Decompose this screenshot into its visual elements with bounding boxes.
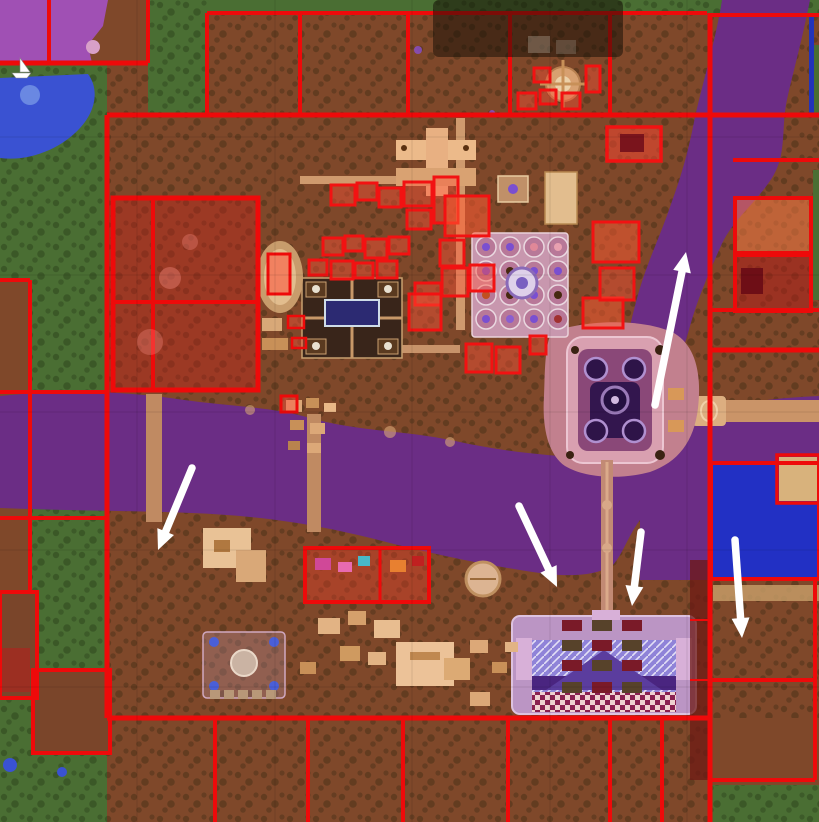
- quad-clearing: [182, 234, 198, 250]
- plot-claim: [323, 238, 343, 255]
- purple-spot-1: [414, 46, 422, 54]
- island-tree-4: [566, 451, 574, 459]
- palace-dome-sw: [585, 420, 607, 442]
- garden-sw-dot: [209, 637, 219, 647]
- cathedral-dot: [463, 145, 469, 151]
- market-stall: [358, 556, 370, 566]
- plot-claim: [466, 344, 492, 372]
- market-stall-plot: [592, 640, 612, 651]
- north-bank-building: [310, 423, 325, 434]
- plot-claim: [331, 261, 353, 279]
- bridge-west: [146, 394, 162, 522]
- shore-dab-2: [445, 437, 455, 447]
- parterre-circle: [312, 342, 320, 350]
- market-stall: [412, 556, 424, 566]
- plot-claim: [518, 93, 536, 109]
- island-tree-2: [571, 346, 579, 354]
- pond-sw-2: [57, 767, 67, 777]
- lake-nw-shallow: [20, 85, 40, 105]
- garden-sw-dot: [269, 637, 279, 647]
- garden-sw-plot: [224, 690, 234, 699]
- village-building: [492, 662, 507, 673]
- village-building: [318, 618, 340, 634]
- village-building: [505, 642, 518, 652]
- sw-claim-ground-2: [33, 670, 110, 753]
- market-stall-plot: [622, 620, 642, 631]
- orchard-claim: [445, 196, 489, 236]
- garden-sw-dot: [269, 681, 279, 691]
- garden-dot: [530, 315, 538, 323]
- right-bottom-ground: [712, 718, 819, 785]
- garden-medallion-dot: [516, 277, 528, 289]
- market-stall-plot: [562, 620, 582, 631]
- causeway-knob-1: [602, 500, 612, 510]
- plot-claim: [331, 185, 355, 205]
- plot-claim: [379, 188, 401, 207]
- market-stall: [390, 560, 406, 572]
- plot-claim: [540, 90, 556, 104]
- palace-dome-nw: [585, 358, 607, 380]
- north-bank-building: [290, 420, 304, 430]
- green-notch-texture: [148, 0, 207, 115]
- plot-claim: [586, 66, 600, 92]
- green-right-sliver-2: [813, 170, 819, 300]
- causeway-knob-2: [602, 543, 612, 553]
- quad-clearing: [159, 267, 181, 289]
- stadium-south-claim: [288, 316, 304, 328]
- plot-claim: [357, 183, 377, 200]
- plot-claim: [530, 336, 546, 354]
- north-bank-building: [307, 443, 321, 453]
- reflecting-pool: [325, 300, 379, 326]
- shore-dab-3: [245, 405, 255, 415]
- stadium-claim: [268, 254, 290, 294]
- garden-dot: [482, 315, 490, 323]
- village-building: [340, 646, 360, 661]
- market-stall-plot: [622, 660, 642, 671]
- stadium-south-building: [262, 318, 282, 331]
- village-building: [348, 611, 366, 625]
- plot-claim: [496, 347, 520, 373]
- market-stall-plot: [562, 660, 582, 671]
- cathedral-dot: [401, 145, 407, 151]
- village-building: [470, 640, 488, 653]
- darkred-building: [741, 268, 763, 294]
- garden-dot: [554, 291, 562, 299]
- crop-strip-east: [690, 560, 710, 780]
- garden-sw-center: [231, 650, 257, 676]
- shore-dab-1: [384, 426, 396, 438]
- plot-claim: [440, 240, 464, 266]
- pond-sw-1: [3, 758, 17, 772]
- temple-tower-west: [516, 638, 532, 680]
- plot-claim: [409, 294, 441, 330]
- plot-claim: [355, 263, 373, 278]
- temple-tower-east: [676, 638, 692, 680]
- parterre-circle: [384, 285, 392, 293]
- garden-dot: [506, 243, 514, 251]
- garden-dot: [554, 267, 562, 275]
- shadow-block: [556, 40, 576, 54]
- market-stall: [338, 562, 352, 572]
- market-stall-plot: [622, 640, 642, 651]
- parterre-circle: [312, 285, 320, 293]
- palace-center-dot: [611, 396, 619, 404]
- palace-dome-se: [623, 420, 645, 442]
- map-shapes-layer: [0, 0, 819, 822]
- orchard-claim: [583, 298, 623, 328]
- plot-claim: [309, 260, 327, 275]
- plot-claim: [470, 265, 494, 291]
- garden-dot: [554, 243, 562, 251]
- plot-claim: [442, 268, 468, 296]
- world-map-canvas[interactable]: [0, 0, 819, 822]
- village-building: [300, 662, 316, 674]
- claim-box-orange: [735, 198, 811, 253]
- village-building: [374, 620, 400, 638]
- garden-sw-plot: [238, 690, 248, 699]
- shore-below-lake: [713, 585, 819, 601]
- island-tree-3: [655, 450, 665, 460]
- village-bighouse-roof: [410, 652, 440, 660]
- north-bank-claim: [281, 396, 297, 412]
- orchard-claim: [593, 222, 639, 262]
- quad-clearing: [137, 329, 163, 355]
- garden-dot: [530, 243, 538, 251]
- claim-fill-sw: [2, 648, 30, 692]
- map-viewport[interactable]: [0, 0, 819, 822]
- garden-dot: [482, 243, 490, 251]
- plot-claim: [534, 68, 550, 82]
- north-bank-building: [306, 398, 319, 408]
- garden-dot: [554, 315, 562, 323]
- plot-claim: [389, 237, 409, 254]
- stadium-south-claim: [292, 338, 306, 348]
- plot-claim: [407, 210, 431, 229]
- market-stall-plot: [562, 640, 582, 651]
- garden-sw-plot: [210, 690, 220, 699]
- ne-garden-center: [508, 184, 518, 194]
- water-edge-strip: [809, 15, 814, 115]
- shadow-block: [528, 36, 550, 53]
- plot-claim: [404, 182, 432, 206]
- manor-southwest-wing: [236, 550, 266, 582]
- plot-claim: [600, 268, 634, 300]
- green-se-texture: [712, 785, 819, 822]
- plot-claim: [365, 239, 387, 258]
- market-stall: [315, 558, 331, 570]
- island-building-2: [668, 420, 684, 432]
- plot-claim: [562, 93, 580, 109]
- temple-checker-band: [532, 692, 676, 712]
- bottom-row-texture: [107, 718, 712, 822]
- north-bank-building: [288, 441, 300, 450]
- market-stall-plot: [592, 660, 612, 671]
- left-claim-quad: [113, 198, 258, 390]
- garden-sw-plot: [252, 690, 262, 699]
- village-building: [470, 692, 490, 706]
- island-building-1: [668, 388, 684, 400]
- village-building: [368, 652, 386, 665]
- palace-dome-ne: [623, 358, 645, 380]
- market-stall-plot: [592, 620, 612, 631]
- parterre-circle: [384, 342, 392, 350]
- plot-claim: [345, 236, 363, 251]
- nw-shore-dab: [86, 40, 100, 54]
- garden-dot: [506, 315, 514, 323]
- north-bank-building: [324, 403, 336, 412]
- garden-sw-dot: [209, 681, 219, 691]
- village-bighouse-wing: [444, 658, 470, 680]
- temple-entry: [592, 610, 620, 620]
